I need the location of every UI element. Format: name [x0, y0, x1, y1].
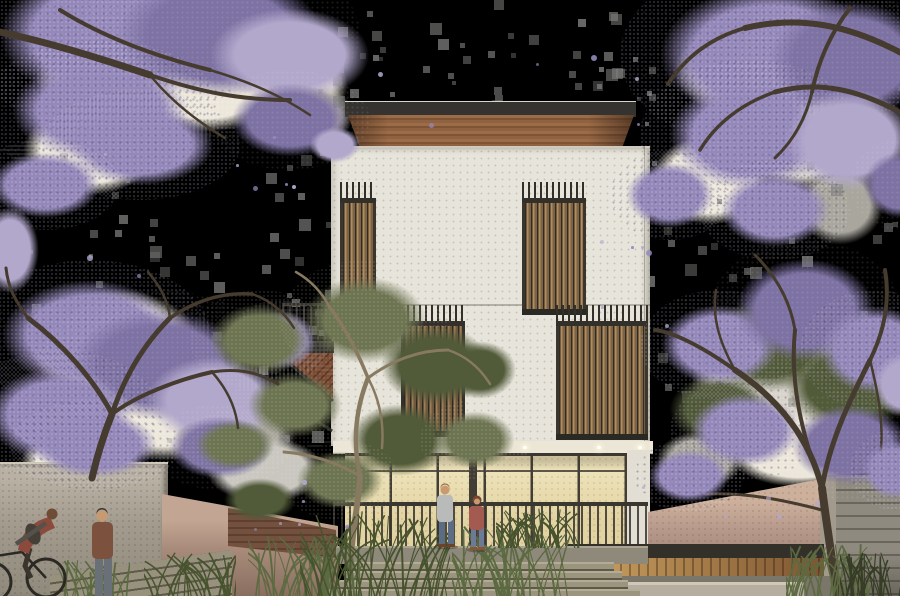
cyclist-head: [47, 509, 58, 520]
petal: [302, 500, 305, 503]
petal: [137, 274, 141, 278]
petal: [302, 480, 307, 485]
petal: [67, 314, 71, 318]
figures: [0, 0, 900, 596]
petal: [591, 55, 597, 61]
petal: [641, 246, 644, 249]
petal: [87, 255, 93, 261]
petal: [724, 515, 727, 518]
architectural-rendering: [0, 0, 900, 596]
petal: [279, 522, 282, 525]
petal: [815, 501, 820, 506]
petal: [536, 63, 539, 66]
cyclist-left: [0, 509, 65, 596]
man-at-entry: [434, 484, 458, 550]
petal: [631, 246, 634, 249]
petal: [273, 136, 276, 139]
petal: [601, 306, 604, 309]
petal: [236, 164, 239, 167]
petal: [670, 481, 675, 486]
petal: [298, 523, 301, 526]
woman-at-entry: [467, 496, 487, 553]
front-wheel: [0, 563, 11, 596]
pedestrian-left: [92, 508, 113, 596]
petal: [378, 72, 383, 77]
petal: [646, 250, 652, 256]
petal: [104, 153, 107, 156]
petal: [777, 514, 782, 519]
